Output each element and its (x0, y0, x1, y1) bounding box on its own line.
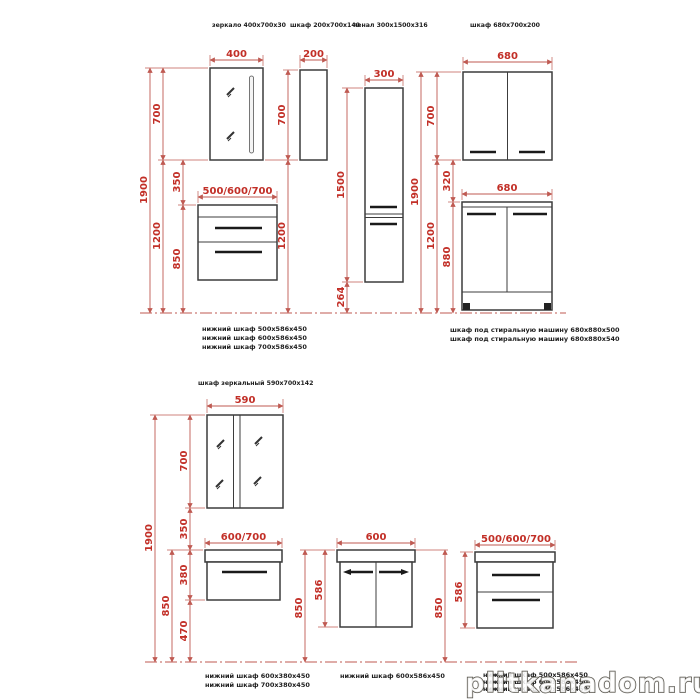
dim-bottom-width: 680 (497, 183, 518, 194)
dim-gap: 350 (172, 172, 183, 193)
dim-under-height: 1200 (277, 222, 288, 250)
dim-under-height: 1200 (426, 222, 437, 250)
bottom-row-title: шкаф зеркальный 590x700x142 (198, 379, 313, 387)
caption: нижний шкаф 500x586x450 (202, 325, 307, 333)
caption: нижний шкаф 600x380x450 (205, 672, 310, 680)
dim-mirror-width: 400 (226, 49, 247, 60)
title-double-cabinet: шкаф 680x700x200 (470, 21, 541, 29)
cabinet-countertop (475, 552, 555, 562)
technical-drawing-page: зеркало 400x700x30 шкаф 200x700x140 пена… (0, 0, 700, 700)
vanity-countertop (205, 550, 282, 562)
caption: нижний шкаф 700x586x450 (202, 343, 307, 351)
dim-mirror-height: 700 (179, 451, 190, 472)
dim-height: 586 (314, 580, 325, 601)
dim-top-height: 700 (426, 106, 437, 127)
dim-mount-left: 850 (294, 598, 305, 619)
vanity-body (207, 562, 280, 600)
drawing-double-cabinet-680: 1900 700 1200 320 880 680 680 (410, 51, 552, 313)
dim-under-height: 470 (179, 621, 190, 642)
dim-gap: 320 (442, 171, 453, 192)
dim-gap: 350 (179, 519, 190, 540)
caption: шкаф под стиральную машину 680x880x540 (450, 335, 620, 343)
cabinet-countertop (337, 550, 415, 562)
dim-width: 200 (303, 49, 324, 60)
dim-cabinet-width: 500/600/700 (203, 186, 273, 197)
cabinet-foot (544, 303, 551, 310)
caption: нижний шкаф 600x586x450 (202, 334, 307, 342)
mirror-outline (210, 68, 263, 160)
cabinet-body (477, 562, 553, 628)
caption: нижний шкаф 700x380x450 (205, 681, 310, 689)
dim-mount-height: 850 (161, 596, 172, 617)
dim-total-height: 1900 (410, 178, 421, 206)
drawing-mirror-400: 400 1900 700 1200 350 850 500/600/700 (139, 49, 298, 313)
dim-cabinet-height: 380 (179, 565, 190, 586)
dim-mirror-height: 700 (152, 104, 163, 125)
wall-cabinet-outline (300, 70, 327, 160)
dim-cabinet-mount: 850 (172, 249, 183, 270)
dim-total-height: 1900 (144, 524, 155, 552)
title-mirror: зеркало 400x700x30 (212, 22, 287, 29)
dim-cabinet-width: 600/700 (221, 532, 266, 543)
dim-width: 300 (374, 69, 395, 80)
top-row-titles: зеркало 400x700x30 шкаф 200x700x140 пена… (212, 21, 541, 29)
dim-mount-right: 850 (434, 598, 445, 619)
drawing-drawer-cabinet: 500/600/700 586 (454, 534, 555, 628)
caption: нижний шкаф 600x586x450 (340, 672, 445, 680)
dim-bottom-height: 880 (442, 247, 453, 268)
drawing-wall-cabinet-200: 200 700 1200 (277, 49, 327, 313)
furniture-dimension-drawing: зеркало 400x700x30 шкаф 200x700x140 пена… (0, 0, 700, 700)
tall-cabinet-outline (365, 88, 403, 282)
mirror-light-strip (250, 76, 254, 153)
caption: шкаф под стиральную машину 680x880x500 (450, 326, 620, 334)
mirror-cabinet-outline (207, 415, 283, 508)
drawing-mirror-cabinet-590: 590 1900 850 700 350 380 470 600/700 (144, 395, 283, 662)
top-row-captions: нижний шкаф 500x586x450 нижний шкаф 600x… (202, 325, 620, 351)
dim-total-height: 1900 (139, 176, 150, 204)
dim-height: 700 (277, 105, 288, 126)
dim-under-height: 1200 (152, 222, 163, 250)
title-tall-cabinet: пенал 300x1500x316 (353, 22, 428, 29)
watermark: plitkanadom.ru (465, 668, 700, 699)
dim-width: 590 (235, 395, 256, 406)
dim-height: 1500 (336, 171, 347, 199)
cabinet-foot (463, 303, 470, 310)
dim-under-height: 264 (336, 287, 347, 308)
drawing-door-cabinet-600: 600 586 850 850 (294, 532, 448, 662)
title-wall-cabinet: шкаф 200x700x140 (290, 21, 361, 29)
drawing-tall-cabinet-300: 300 1500 264 (336, 69, 403, 313)
dim-width: 500/600/700 (481, 534, 551, 545)
dim-width: 600 (366, 532, 387, 543)
dim-height: 586 (454, 582, 465, 603)
dim-top-width: 680 (497, 51, 518, 62)
